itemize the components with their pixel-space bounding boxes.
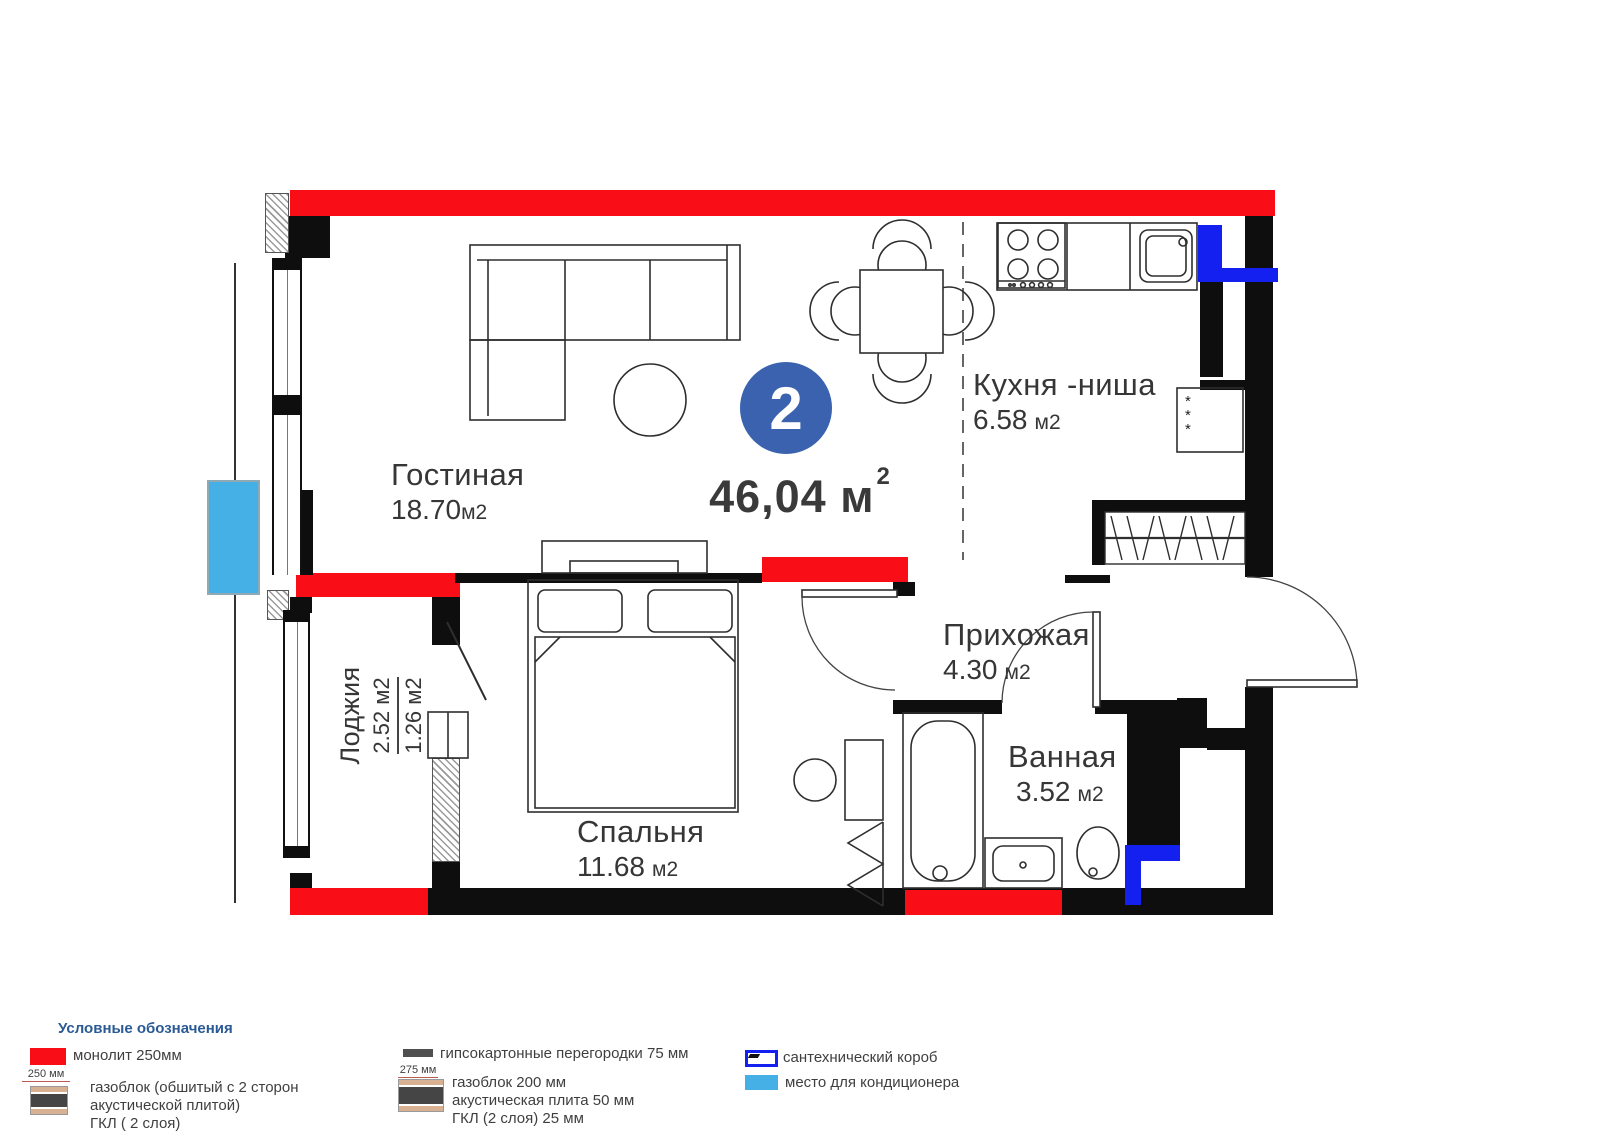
legend-label-monolith: монолит 250мм [73,1047,182,1065]
wall-step-2 [1207,728,1247,750]
window-living-mullion-mid [272,395,302,415]
entrance-door [1247,577,1357,687]
wall-bottom [428,888,1273,915]
bathtub [903,713,983,888]
wall-loggia-corner-bottom [290,873,312,888]
ac-unit-spot [207,480,260,595]
wall-monolith-loggia-bottom [290,888,428,915]
wall-fridge-top [1200,380,1245,390]
partition-hatched-top-left [265,193,289,253]
dining-set [810,220,994,403]
legend-title: Условные обозначения [58,1020,233,1037]
legend-label-ac: место для кондиционера [785,1074,959,1092]
legend-swatch-ac [745,1075,778,1090]
bathroom-sink [985,838,1062,888]
legend-label-gasblock: газоблок (обшитый с 2 сторон акустическо… [90,1079,299,1131]
legend-label-gypsum: гипсокартонные перегородки 75 мм [440,1045,688,1063]
tv-console [542,541,707,573]
wall-monolith-living-loggia [296,573,460,597]
loggia-area-full: 2.52 м2 [369,677,399,753]
room-label-living: Гостиная 18.70м2 [391,458,524,526]
kitchen-sink [1140,230,1192,282]
toilet [1077,827,1119,879]
legend-label-gasblock200: газоблок 200 мм акустическая плита 50 мм… [452,1074,634,1128]
floorplan-page: 2 46,04 м2 Гостиная 18.70м2 Кухня -ниша … [0,0,1600,1131]
room-label-hall: Прихожая 4.30м2 [943,618,1090,686]
wardrobe [1105,512,1245,564]
wall-corner-bedroom-hall [893,582,915,596]
apartment-number-badge: 2 [740,362,832,454]
plumbing-box-kitchen-horizontal [1198,268,1278,282]
wall-right-lower [1245,687,1273,915]
wall-monolith-bedroom-top [762,557,908,582]
wall-bedroom-top [455,573,762,583]
bedroom-cabinet [845,740,883,820]
wall-top-left-block [285,216,330,258]
wall-bath-top-left [893,700,1002,714]
room-label-kitchen: Кухня -ниша 6.58м2 [973,368,1156,436]
legend-swatch-gypsum [403,1049,433,1057]
room-label-bedroom: Спальня 11.68м2 [577,815,704,883]
wall-bath-right-shaft [1127,714,1180,845]
plumbing-box-bath-vertical [1125,845,1141,905]
floorplan: 2 46,04 м2 Гостиная 18.70м2 Кухня -ниша … [205,185,1400,930]
fridge-snowflake-mark: * * * [1185,395,1191,437]
apartment-number: 2 [769,374,802,443]
wall-wardrobe-side [1092,500,1105,565]
coffee-table [614,364,686,436]
window-loggia [283,610,310,858]
legend-swatch-plumb-box [745,1050,778,1067]
legend-swatch-monolith [30,1048,66,1065]
kitchen-counter [997,223,1197,290]
wall-step-1 [1177,698,1207,748]
room-label-loggia: Лоджия 2.52 м2 1.26 м2 [328,628,433,803]
total-area: 46,04 м2 [660,463,940,523]
wall-monolith-bath-bottom [905,890,1062,915]
room-label-bath: Ванная 3.52м2 [1008,740,1117,808]
wall-hall-stub [1065,575,1110,583]
wall-bath-top-right [1095,700,1177,714]
wall-monolith-top [290,190,1275,216]
legend-swatch-gasblock200 [398,1079,444,1112]
legend-label-plumb-box: сантехнический короб [783,1049,938,1067]
window-living-mullion-top [272,258,302,270]
wall-loggia-partition-bottom [432,860,460,888]
partition-hatched-loggia [432,758,460,862]
legend-dim-250: 250 мм [22,1068,70,1082]
window-loggia-mullion-top [283,610,310,622]
pouf [794,759,836,801]
bedroom-door [802,590,897,690]
bed [528,580,738,812]
sofa [470,245,740,420]
window-loggia-mullion-bottom [283,846,310,858]
window-living [272,258,302,575]
legend-swatch-gasblock [30,1086,68,1115]
wall-loggia-partition-top [432,597,460,645]
legend-dim-275: 275 мм [398,1064,438,1078]
stove [998,223,1065,288]
wall-kitchen-inner [1200,282,1223,377]
wall-wardrobe-top [1092,500,1245,512]
loggia-area-reduced: 1.26 м2 [399,677,427,753]
